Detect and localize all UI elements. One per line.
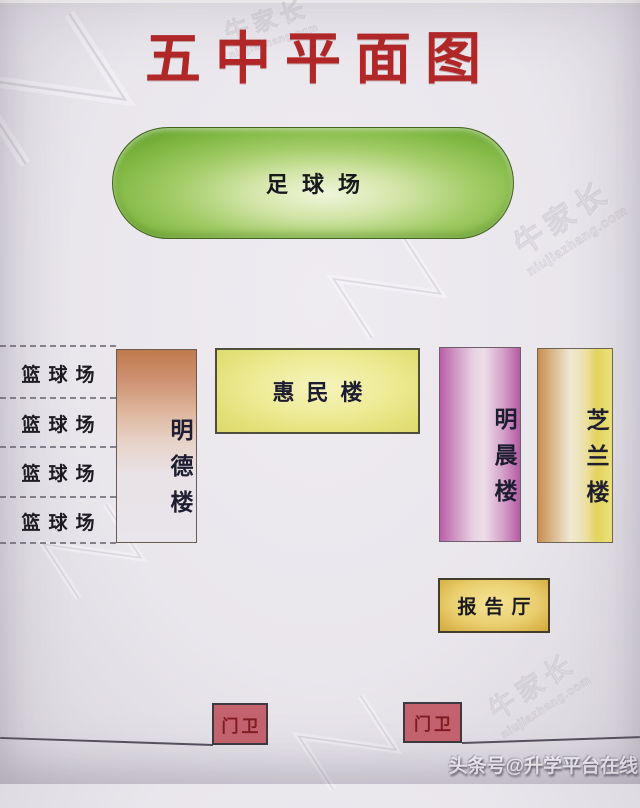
guard-post-label: 门卫 bbox=[219, 712, 262, 737]
boundary-wall-right bbox=[462, 736, 640, 744]
building-mingchen: 明晨楼 bbox=[439, 347, 521, 542]
building-label: 明晨楼 bbox=[440, 407, 520, 515]
building-lecture-hall: 报告厅 bbox=[438, 578, 550, 633]
guard-post: 门卫 bbox=[212, 703, 268, 745]
building-label: 明德楼 bbox=[117, 418, 196, 526]
building-mingde: 明德楼 bbox=[116, 349, 197, 543]
guard-post: 门卫 bbox=[403, 702, 462, 743]
photo-edge bbox=[0, 0, 640, 3]
football-field-label: 足球场 bbox=[252, 167, 374, 199]
brand-watermark-logo bbox=[279, 672, 420, 807]
watermark-brand-text: 牛家长 bbox=[480, 641, 583, 727]
basketball-court-label: 篮球场 bbox=[0, 459, 116, 486]
guard-post-label: 门卫 bbox=[411, 710, 454, 735]
brand-watermark: 牛家长 niujiazhang.com bbox=[476, 639, 593, 741]
building-huimin: 惠民楼 bbox=[215, 348, 420, 434]
brand-watermark: 牛家长 niujiazhang.com bbox=[500, 165, 630, 278]
court-divider-line bbox=[0, 542, 116, 544]
court-divider-line bbox=[0, 345, 116, 347]
football-field: 足球场 bbox=[112, 127, 514, 239]
building-zhilan: 芝兰楼 bbox=[537, 348, 613, 543]
basketball-court-label: 篮球场 bbox=[0, 360, 116, 387]
watermark-site-text: niujiazhang.com bbox=[524, 202, 630, 278]
basketball-court-label: 篮球场 bbox=[0, 410, 116, 437]
campus-map: 牛家长 niujiazhang.com 牛家长 niujiazhang.com … bbox=[0, 0, 640, 784]
building-label: 报告厅 bbox=[449, 592, 538, 619]
building-label: 芝兰楼 bbox=[538, 408, 612, 516]
watermark-brand-text: 牛家长 bbox=[504, 168, 619, 264]
watermark-site-text: niujiazhang.com bbox=[498, 672, 594, 741]
building-label: 惠民楼 bbox=[260, 375, 374, 407]
boundary-wall-left bbox=[0, 737, 213, 746]
court-divider-line bbox=[0, 496, 116, 498]
page-title: 五中平面图 bbox=[0, 14, 640, 95]
n-logo-icon bbox=[279, 672, 420, 807]
basketball-court-label: 篮球场 bbox=[0, 508, 116, 535]
court-divider-line bbox=[0, 446, 116, 448]
photo-credit-watermark: 头条号@升学平台在线 bbox=[448, 751, 638, 778]
court-divider-line bbox=[0, 397, 116, 399]
